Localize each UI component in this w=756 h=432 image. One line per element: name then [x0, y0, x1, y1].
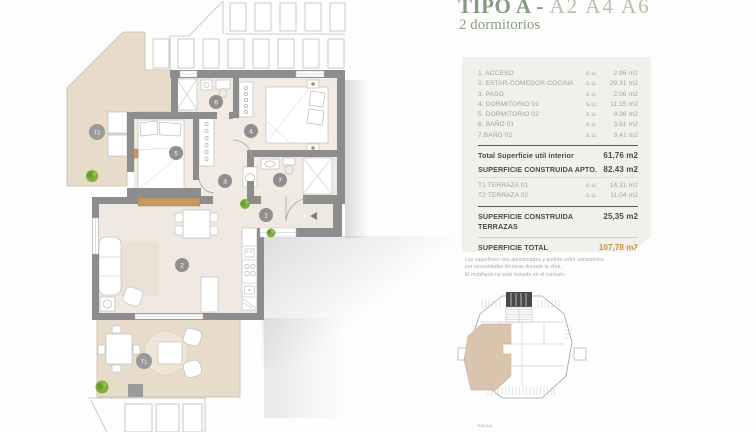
terraza-name: T1 TERRAZA 01 [478, 181, 586, 191]
plant-icon [267, 229, 276, 238]
su-label: s.u. [586, 120, 600, 130]
disclaimer-line: Las superficies son aproximadas y podrán… [465, 257, 604, 264]
neighbor-structure-bottom [88, 398, 205, 432]
elevator-core [506, 292, 532, 307]
room-label-1: 1 [259, 208, 273, 222]
room-label-7: 7 [273, 173, 287, 187]
total-util-row: Total Superficie util interior 61,76 m2 [478, 146, 638, 160]
su-label: s.u. [586, 110, 600, 120]
room-name: 6. BAÑO 01 [478, 120, 586, 130]
sofa [99, 237, 121, 295]
wardrobe-bed4 [239, 82, 253, 117]
terraza-row: T2 TERRAZA 02s.u.11,04 m2 [478, 191, 638, 201]
disclaimer: Las superficies son aproximadas y podrán… [465, 257, 604, 279]
planter-box [128, 384, 143, 397]
room-value: 2.06 m2 [600, 90, 638, 100]
construida-terrazas-row: SUPERFICIE CONSTRUIDA TERRAZAS 25,35 m2 [478, 207, 638, 232]
room-value: 29.31 m2 [600, 79, 638, 89]
svg-text:2: 2 [180, 263, 184, 270]
room-row: 7.BAÑO 02s.u.3.41 m2 [478, 131, 638, 141]
su-label: s.u. [586, 191, 600, 201]
terrace-label-t2: T2 [89, 124, 105, 140]
disclaimer-line: por necesidades técnicas durante la obra… [465, 264, 604, 271]
sideboard [138, 198, 200, 206]
construida-apto-row: SUPERFICIE CONSTRUIDA APTO. 82.43 m2 [478, 160, 638, 174]
highlighted-unit [464, 324, 511, 390]
disclaimer-line: El mobiliario no está incluido en el con… [465, 272, 604, 279]
side-table [100, 297, 115, 311]
construida-terrazas-value: 25,35 m2 [603, 212, 638, 221]
floor-plan: 1 2 3 4 5 6 7 T1 T2 [0, 0, 456, 432]
svg-text:3: 3 [223, 179, 227, 186]
svg-text:5: 5 [174, 151, 178, 158]
svg-text:T1: T1 [141, 359, 148, 365]
room-name: 3. PASO [478, 90, 586, 100]
svg-text:7: 7 [278, 178, 282, 185]
svg-text:6: 6 [214, 100, 218, 107]
kitchen-counter [242, 228, 257, 310]
key-plan-caption: ESCA A [478, 423, 493, 428]
terraza-value: 11,04 m2 [600, 191, 638, 201]
title-variants: A2 A4 A6 [549, 0, 650, 18]
room-value: 9.36 m2 [600, 110, 638, 120]
plant-icon [240, 199, 250, 209]
room-row: 1. ACCESOs.u.2.96 m2 [478, 69, 638, 79]
su-label: s.u. [586, 79, 600, 89]
terraza-value: 14,31 m2 [600, 181, 638, 191]
plant-icon [86, 170, 98, 182]
construida-apto-value: 82.43 m2 [603, 165, 638, 174]
terraza-name: T2 TERRAZA 02 [478, 191, 586, 201]
construida-apto-label: SUPERFICIE CONSTRUIDA APTO. [478, 165, 597, 174]
su-label: s.u. [586, 131, 600, 141]
wing-right [574, 348, 586, 360]
svg-text:4: 4 [249, 129, 253, 136]
room-name: 5. DORMITORIO 02 [478, 110, 586, 120]
room-value: 11.15 m2 [600, 100, 638, 110]
brochure-page: 1 2 3 4 5 6 7 T1 T2 TIPO A - A2 A4 A6 2 … [0, 0, 756, 432]
room-row: 4. DORMITORIO 01s.u.11.15 m2 [478, 100, 638, 110]
su-label: s.u. [586, 100, 600, 110]
room-row: 5. DORMITORIO 02s.u.9.36 m2 [478, 110, 638, 120]
room-name: 1. ACCESO [478, 69, 586, 79]
page-subtitle: 2 dormitorios [459, 17, 540, 34]
su-label: s.u. [586, 90, 600, 100]
total-apartamento-value: 107,78 m2 [599, 243, 638, 252]
room-value: 3.41 m2 [600, 131, 638, 141]
stairs [506, 307, 532, 322]
areas-panel: 1. ACCESOs.u.2.96 m2 2. ESTAR-COMEDOR-CO… [462, 57, 651, 252]
key-plan: ESCA A [456, 286, 588, 432]
svg-text:T2: T2 [94, 130, 101, 136]
su-label: s.u. [586, 181, 600, 191]
bed-double [266, 87, 328, 143]
room-row: 6. BAÑO 01s.u.3.51 m2 [478, 120, 638, 130]
terrace-label-t1: T1 [136, 353, 152, 369]
room-row: 2. ESTAR-COMEDOR-COCINAs.u.29.31 m2 [478, 79, 638, 89]
room-value: 2.96 m2 [600, 69, 638, 79]
construida-terrazas-label: SUPERFICIE CONSTRUIDA TERRAZAS [478, 212, 578, 232]
room-label-3: 3 [218, 174, 232, 188]
total-util-label: Total Superficie util interior [478, 151, 574, 160]
tv-cabinet [201, 277, 218, 312]
room-name: 2. ESTAR-COMEDOR-COCINA [478, 79, 586, 89]
room-label-6: 6 [209, 95, 223, 109]
svg-text:1: 1 [264, 213, 268, 220]
room-label-4: 4 [244, 124, 258, 138]
room-label-5: 5 [169, 146, 183, 160]
room-label-2: 2 [175, 258, 189, 272]
room-value: 3.51 m2 [600, 120, 638, 130]
room-name: 7.BAÑO 02 [478, 131, 586, 141]
plant-icon [96, 381, 109, 394]
su-label: s.u. [586, 69, 600, 79]
title-type: TIPO A - [458, 0, 544, 18]
room-row: 3. PASOs.u.2.06 m2 [478, 90, 638, 100]
terraza-row: T1 TERRAZA 01s.u.14,31 m2 [478, 178, 638, 191]
total-util-value: 61,76 m2 [603, 151, 638, 160]
wardrobe-corridor [199, 118, 214, 166]
room-name: 4. DORMITORIO 01 [478, 100, 586, 110]
